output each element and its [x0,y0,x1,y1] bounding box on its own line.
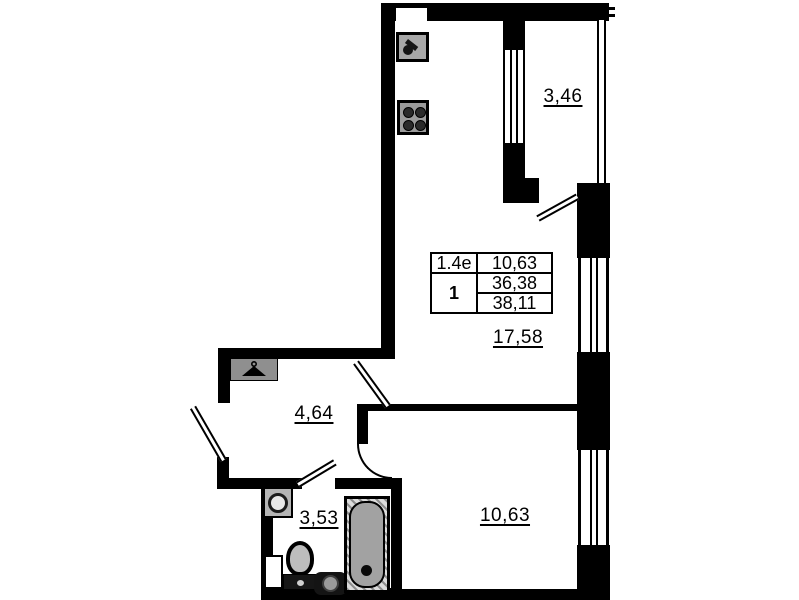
kitchen-sink-icon [396,32,429,62]
floor-plan: 3,46 17,58 4,64 3,53 10,63 1.4е 10,63 1 … [0,0,799,600]
toilet-icon [286,541,314,576]
window-pane [516,50,518,143]
window-pane [596,258,598,352]
washer-door [322,575,339,592]
kitchen-balcony-window [503,50,525,143]
window-pane [578,450,581,545]
window-pane [590,258,592,352]
window-pane [503,50,505,143]
living-room-door [353,360,390,408]
bedroom-window [578,450,609,545]
hallway-area-label: 4,64 [282,403,346,425]
living-area-label: 17,58 [486,327,550,349]
window-pane [510,50,512,143]
total-area-cell: 38,11 [477,293,552,313]
table-row: 1 36,38 [431,273,552,293]
wall-left [381,3,395,359]
balcony-door [536,194,579,222]
washing-machine-icon [314,572,347,595]
wardrobe-hanger-icon [230,358,278,381]
faucet-glyph [399,35,426,59]
window-pane [590,450,592,545]
wall-hall-left-upper [218,348,230,403]
table-row: 1.4е 10,63 [431,253,552,273]
wall-balcony-partition-top [503,21,525,50]
window-pane [606,258,609,352]
bathroom-niche [264,555,283,589]
wall-right-b [577,352,610,450]
wall-right-c [577,545,610,600]
window-pane [596,450,598,545]
window-pane [578,258,581,352]
window-pane [523,50,525,143]
burner-icon [415,107,426,118]
stove-icon [397,100,429,135]
sink-bowl [268,493,288,513]
tub-drain [361,565,372,576]
room-count-cell: 1 [431,273,477,313]
burner-icon [403,107,414,118]
wall-balcony-partition-ext [503,178,539,203]
burner-icon [415,120,426,131]
balcony-glazing [597,20,606,183]
apartment-type-cell: 1.4е [431,253,477,273]
wall-room-divider [357,404,582,411]
wall-balcony-partition-bottom [503,143,525,183]
window-pane [597,20,599,183]
living-room-window [578,258,609,352]
bathroom-door [296,459,336,487]
wall-bath-right [391,478,402,600]
apartment-info-table: 1.4е 10,63 1 36,38 38,11 [430,252,553,314]
window-pane [606,450,609,545]
bedroom-door [357,444,392,479]
living-area-cell: 10,63 [477,253,552,273]
toilet-tank [283,574,317,590]
bathroom-area-label: 3,53 [287,508,351,530]
entrance-door [190,406,227,462]
vent-notch [396,8,427,21]
area-excl-balcony-cell: 36,38 [477,273,552,293]
balcony-break-tick [606,7,615,10]
window-pane [604,20,606,183]
bedroom-area-label: 10,63 [473,505,537,527]
balcony-break-tick [606,14,615,17]
hanger-glyph [240,361,268,378]
flush-button [297,580,304,586]
tub-inner [349,501,385,588]
wall-right-a [577,183,610,258]
burner-icon [403,120,414,131]
balcony-area-label: 3,46 [531,86,595,108]
